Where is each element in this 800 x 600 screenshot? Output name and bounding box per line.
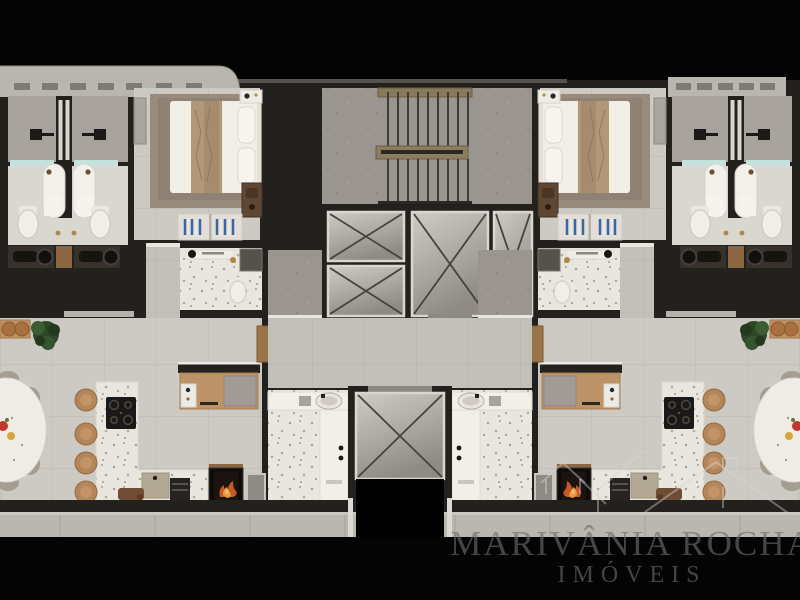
staircase [322,88,532,206]
elevator-lobby-right [478,250,532,316]
floor-plan-screenshot: MARIVÂNIA ROCHA IMÓVEIS [0,0,800,600]
watermark-brand-name: MARIVÂNIA ROCHA [450,524,800,564]
elevator-lobby-left [268,250,322,316]
entry-hall-floor [268,318,532,388]
vent-slots [676,83,775,90]
top-ledge-right [668,77,786,97]
watermark-brand-sub: IMÓVEIS [558,562,707,589]
shaft-void [356,479,444,540]
floor-plan-render [0,0,800,600]
